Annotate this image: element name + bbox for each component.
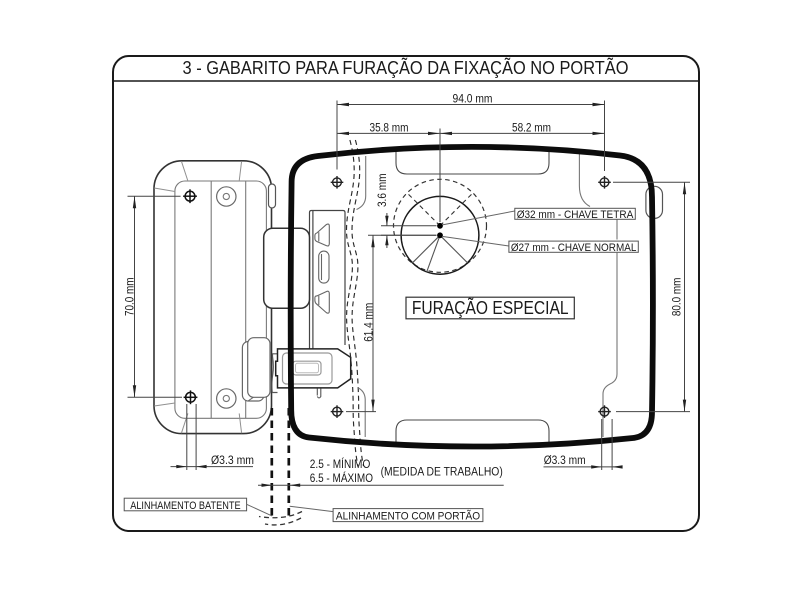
svg-text:ALINHAMENTO COM PORTÃO: ALINHAMENTO COM PORTÃO <box>336 509 480 522</box>
svg-text:Ø3.3 mm: Ø3.3 mm <box>544 455 586 467</box>
svg-text:Ø27 mm - CHAVE NORMAL: Ø27 mm - CHAVE NORMAL <box>511 242 637 254</box>
svg-text:94.0 mm: 94.0 mm <box>453 93 493 105</box>
svg-text:3 - GABARITO PARA FURAÇÃO DA F: 3 - GABARITO PARA FURAÇÃO DA FIXAÇÃO NO … <box>183 57 629 78</box>
svg-text:Ø3.3 mm: Ø3.3 mm <box>211 455 254 467</box>
svg-text:70.0 mm: 70.0 mm <box>124 278 136 317</box>
svg-text:6.5 - MÁXIMO: 6.5 - MÁXIMO <box>310 472 373 485</box>
svg-text:58.2 mm: 58.2 mm <box>512 122 551 134</box>
svg-text:80.0 mm: 80.0 mm <box>672 278 684 317</box>
svg-text:ALINHAMENTO BATENTE: ALINHAMENTO BATENTE <box>130 500 241 512</box>
svg-text:35.8 mm: 35.8 mm <box>370 122 409 134</box>
svg-text:(MEDIDA DE TRABALHO): (MEDIDA DE TRABALHO) <box>381 466 503 478</box>
svg-text:Ø32 mm - CHAVE TETRA: Ø32 mm - CHAVE TETRA <box>517 209 634 221</box>
svg-text:2.5 - MÍNIMO: 2.5 - MÍNIMO <box>310 458 371 471</box>
svg-text:3.6 mm: 3.6 mm <box>377 174 389 208</box>
svg-text:FURAÇÃO ESPECIAL: FURAÇÃO ESPECIAL <box>412 297 569 318</box>
svg-text:61.4 mm: 61.4 mm <box>363 303 375 342</box>
